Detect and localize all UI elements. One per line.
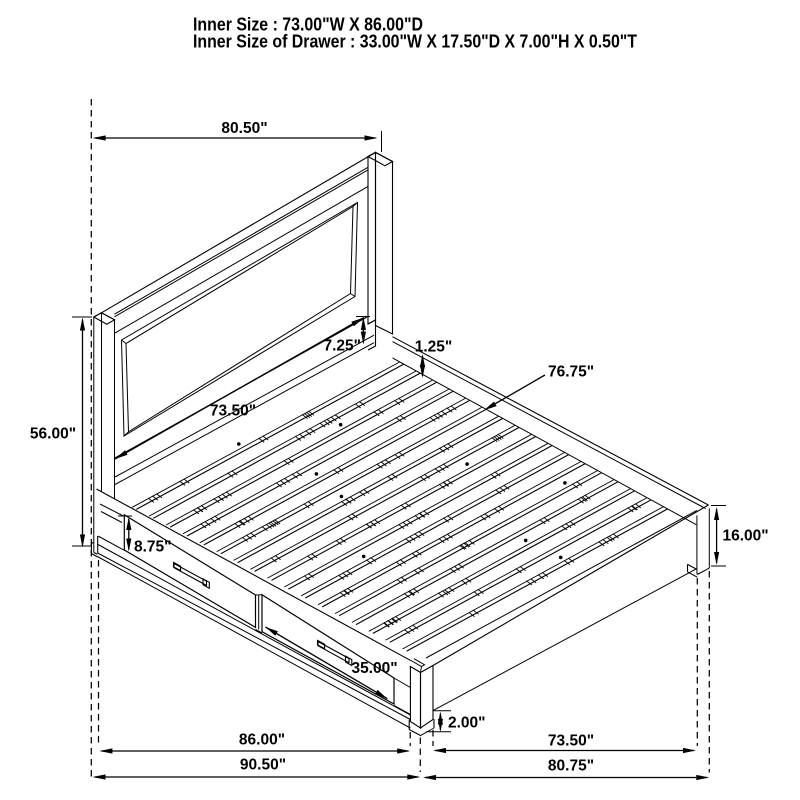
svg-text:56.00": 56.00" <box>30 426 76 443</box>
svg-text:35.00": 35.00" <box>352 660 398 677</box>
svg-text:Inner Size of Drawer : 33.00"W: Inner Size of Drawer : 33.00"W X 17.50"D… <box>193 32 637 52</box>
svg-text:80.50": 80.50" <box>221 120 267 137</box>
svg-text:90.50": 90.50" <box>240 757 286 774</box>
svg-text:73.50": 73.50" <box>210 403 256 420</box>
svg-text:73.50": 73.50" <box>548 733 594 750</box>
svg-text:1.25": 1.25" <box>415 339 453 356</box>
svg-text:86.00": 86.00" <box>239 732 285 749</box>
svg-text:16.00": 16.00" <box>723 528 769 545</box>
svg-text:76.75": 76.75" <box>548 364 594 381</box>
svg-text:80.75": 80.75" <box>548 758 594 775</box>
svg-text:8.75": 8.75" <box>134 539 172 556</box>
svg-text:7.25": 7.25" <box>323 338 361 355</box>
svg-text:2.00": 2.00" <box>448 715 486 732</box>
